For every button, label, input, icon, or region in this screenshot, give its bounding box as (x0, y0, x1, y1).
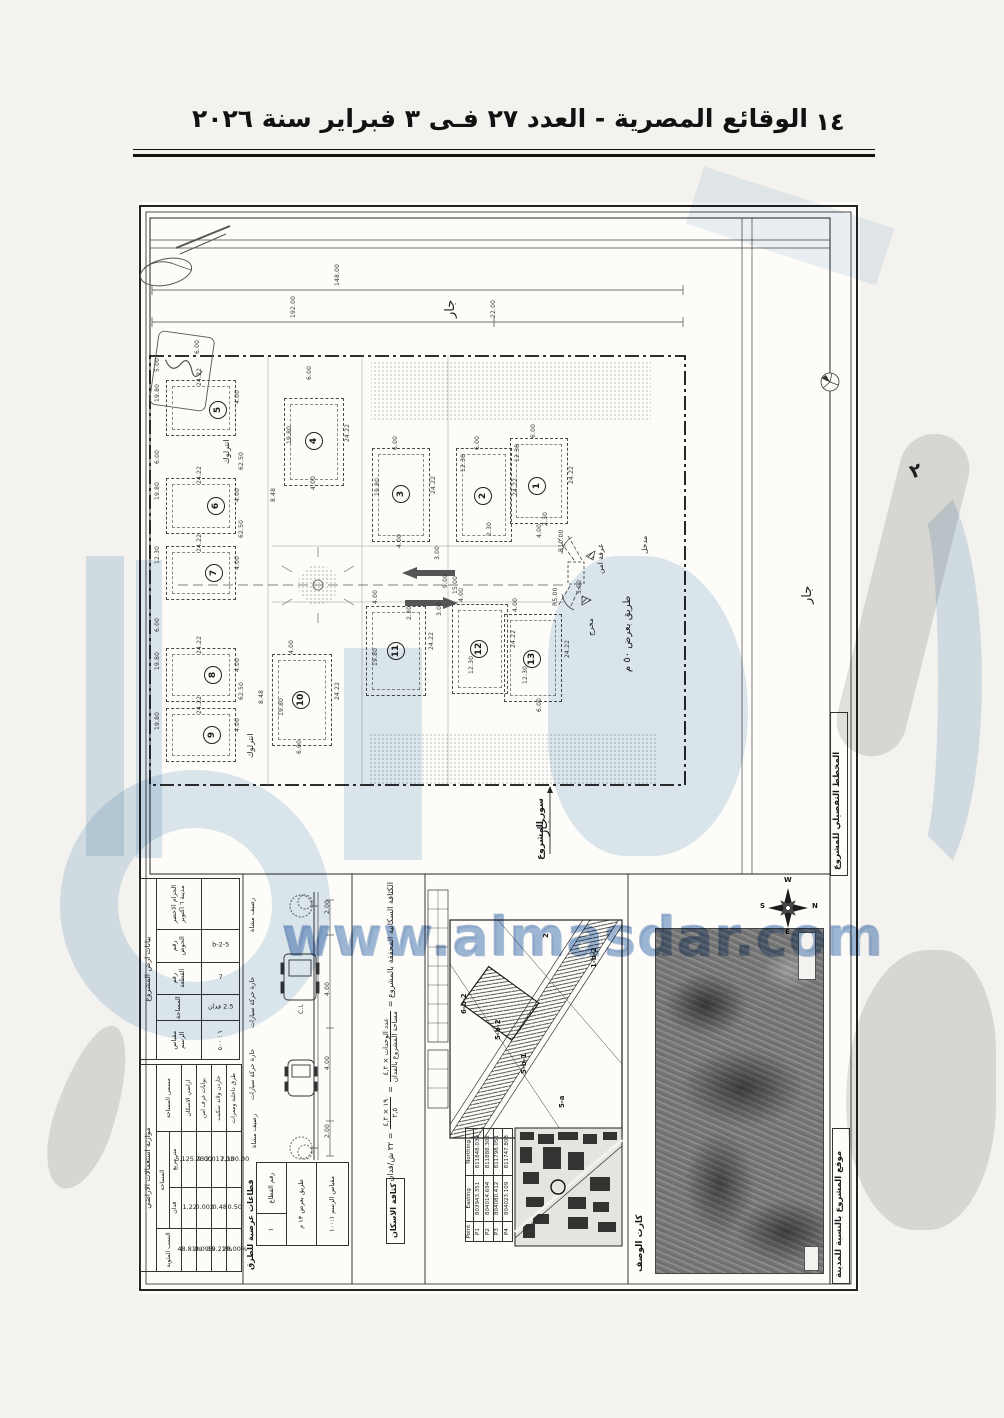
landuse-name-3: طرق داخلية وممرات (227, 1065, 242, 1132)
keymap-label-2: 2 (542, 933, 550, 938)
coords-header-Easting: Easting (466, 1175, 474, 1222)
landuse-name-0: اراضي الاسكان (182, 1065, 197, 1132)
landuse-table-title: موازنة استعمالات الاراضي (141, 1065, 157, 1272)
landuse-name-1: بوابات غرف امن (197, 1065, 212, 1132)
dim-label: 2.30 (486, 522, 493, 536)
plot-number-9: 9 (203, 726, 221, 744)
landuse-row-0: اراضي الاسكان5,125.231.2248.81% (182, 1065, 197, 1272)
compass-n: N (812, 902, 818, 910)
keymap-label-5-a: 5-a (558, 1096, 566, 1109)
dim-label: 6.00 (306, 366, 313, 380)
compass-e: E (785, 928, 790, 936)
dim-label: 148.00 (334, 264, 341, 286)
exit-label: مخرج (586, 618, 595, 636)
dim-label: 24.22 (344, 424, 351, 442)
land-table-labels: الحزام الاخضر مدينة ٦ اكتوبررقم الحوضرقم… (157, 879, 201, 1060)
dim-label: 6.00 (194, 340, 201, 354)
dim-label: 62.50 (238, 520, 245, 538)
dim-label: 24.22 (334, 682, 341, 700)
coords-cell: P2 (483, 1222, 493, 1242)
coords-row-P2: P2804014.694811888.302 (483, 1129, 493, 1242)
land-label-1: رقم الحوض (157, 930, 201, 963)
page-number: ١٤ (806, 108, 854, 136)
dim-label: 5.00 (576, 580, 583, 594)
dim-label: 24.22 (196, 696, 203, 714)
section-road-label: طريق بعرض ١٣ م (287, 1163, 317, 1246)
plot-number-10: 10 (292, 691, 310, 709)
dim-label: 3.00 (436, 602, 443, 616)
dim-label: 19.80 (154, 652, 161, 670)
watermark-shape (33, 1017, 143, 1197)
landuse-row-1: بوابات غرف امن9.000.0020.09% (197, 1065, 212, 1272)
density-numerator-2: ١٩ × ٤,٢ (382, 1097, 391, 1129)
dim-label: 2.30 (542, 512, 549, 526)
landuse-col-name: مسمى المساحة (157, 1065, 182, 1132)
coords-row-P4: P4804023.109811747.808 (503, 1129, 513, 1242)
gazette-page: { "header": { "title": "الوقائع المصرية … (0, 0, 1004, 1418)
card-label: كارت الوصف (635, 1215, 645, 1273)
landuse-m2-0: 5,125.23 (182, 1132, 197, 1187)
dim-label: 4.00 (396, 534, 403, 548)
land-label-2: رقم القطعة (157, 962, 201, 994)
dim-label: R5.00 (552, 587, 559, 606)
section-no-label: رقم القطاع (257, 1163, 287, 1214)
dim-label: 192.00 (290, 296, 297, 318)
plot-8 (166, 648, 236, 702)
fence-label: سور المشروع (536, 798, 546, 860)
coords-cell: P1 (474, 1222, 484, 1242)
interlock-label-2: انترلوك (246, 734, 255, 758)
detail-plan-title: المخطط التفصيلي للمشروع (832, 752, 842, 870)
dim-label: 12.30 (154, 546, 161, 564)
coords-header-Northing: Northing (466, 1129, 474, 1176)
dim-label: 4.00 (234, 390, 241, 404)
section-info-table: رقم القطاع ١ طريق بعرض ١٣ م مقياس الرسم … (256, 1162, 349, 1246)
land-value-1: 5-b-2 (201, 930, 239, 963)
dim-label: 6.00 (296, 740, 303, 754)
dim-label: 24.22 (428, 632, 435, 650)
dim-label: 5.00 (154, 358, 161, 372)
dim-label: 8.48 (270, 488, 277, 502)
dim-label: 24.22 (564, 640, 571, 658)
landuse-fd-1: 0.002 (197, 1187, 212, 1228)
plot-7 (166, 546, 236, 600)
header-rule (133, 149, 875, 157)
dim-label: 19.80 (286, 426, 293, 444)
land-label-0: الحزام الاخضر مدينة ٦ اكتوبر (157, 879, 201, 930)
land-table-title: بيانات ارض المشروع (141, 879, 157, 1060)
security-room-label: غرفة امن (596, 544, 605, 574)
land-value-3: 2.5 فدان (201, 994, 239, 1021)
plot-number-2: 2 (474, 487, 492, 505)
dim-label: 19.80 (154, 482, 161, 500)
dim-label: 4.00 (536, 524, 543, 538)
dim-label: 4.00 (288, 640, 295, 654)
coords-cell: 803943.351 (474, 1175, 484, 1222)
land-table-values: 5-b-272.5 فدان١ : ٥٠٠ (201, 879, 239, 1060)
dim-label: 4.00 (512, 598, 519, 612)
landuse-name-2: جاردن ولاند سكيب (212, 1065, 227, 1132)
dim-label: 6.00 (530, 424, 537, 438)
lane-label-2: حارة حركة سيارات (248, 1049, 256, 1100)
land-value-2: 7 (201, 962, 239, 994)
dim-label: 24.22 (196, 368, 203, 386)
plot-number-7: 7 (205, 564, 223, 582)
coords-cell: 811798.051 (493, 1129, 503, 1176)
coords-row-P1: P1803943.351811848.039 (474, 1129, 484, 1242)
density-lead: الكثافة السكانية المحققة بالمشروع = (386, 882, 395, 1007)
landuse-m2-3: 2,100.00 (227, 1132, 242, 1187)
landuse-row-3: طرق داخلية وممرات2,100.000.5020.00% (227, 1065, 242, 1272)
dim-label: 62.50 (238, 452, 245, 470)
coords-header-row: PointEastingNorthing (466, 1129, 474, 1242)
density-numerator: عدد الوحدات × ٤,٢ (382, 1011, 391, 1082)
satellite-legend-box-2 (804, 1246, 819, 1271)
coords-cell: 811848.039 (474, 1129, 484, 1176)
neighbor-label-right: جار (800, 586, 815, 604)
dim-label: 4.00 (458, 588, 465, 602)
section-scale-label: مقياس الرسم ١٠٠:١ (317, 1163, 349, 1246)
dim-label: 6.00 (474, 436, 481, 450)
neighbor-label-top: جار (443, 300, 458, 318)
dim-label: 2.00 (324, 1124, 331, 1138)
keymap-label-5-b-2: 5-b-2 (494, 1019, 502, 1040)
dim-label: 62.50 (238, 682, 245, 700)
dim-label: 3.00 (434, 546, 441, 560)
dim-label: 12.30 (460, 454, 467, 472)
plot-9 (166, 708, 236, 762)
density-denominator: مساحة المشروع بالفدان (391, 1011, 399, 1082)
watermark-shape (86, 556, 124, 856)
dim-label: 4.00 (372, 590, 379, 604)
sections-side-label: قطاعات عرضية للطرق (246, 1179, 255, 1270)
land-data-table: بيانات ارض المشروع الحزام الاخضر مدينة ٦… (140, 878, 240, 1060)
coords-cell: 811747.808 (503, 1129, 513, 1176)
dim-label: 19.80 (374, 478, 381, 496)
dim-label: 4.00 (324, 1056, 331, 1070)
dim-label: 6.00 (536, 698, 543, 712)
landuse-table-body: اراضي الاسكان5,125.231.2248.81%بوابات غر… (182, 1065, 242, 1272)
compass-s: S (760, 902, 765, 910)
dim-label: R10.00 (558, 529, 565, 552)
interlock-label-1: انترلوك (222, 440, 231, 464)
land-value-4: ١ : ٥٠٠ (201, 1021, 239, 1060)
dim-label: 19.80 (372, 648, 379, 666)
dim-label: 24.22 (568, 466, 575, 484)
dim-label: 8.48 (258, 690, 265, 704)
landuse-fd-0: 1.22 (182, 1187, 197, 1228)
landuse-fd-3: 0.50 (227, 1187, 242, 1228)
coords-row-P3: P3804080.412811798.051 (493, 1129, 503, 1242)
plot-6 (166, 478, 236, 534)
dim-label: 24.22 (430, 476, 437, 494)
dim-label: 9.00 (442, 574, 449, 588)
dim-label: 24.22 (196, 466, 203, 484)
dim-label: 4.00 (234, 718, 241, 732)
coords-cell: 804080.412 (493, 1175, 503, 1222)
landuse-pct-3: 20.00% (227, 1228, 242, 1271)
plot-number-11: 11 (387, 642, 405, 660)
dim-label: 4.00 (234, 488, 241, 502)
coords-table-body: P1803943.351811848.039P2804014.694811888… (474, 1129, 513, 1242)
landuse-col-area: المساحة (157, 1132, 170, 1228)
coords-cell: 804023.109 (503, 1175, 513, 1222)
plot-number-6: 6 (207, 497, 225, 515)
watermark-shape (862, 470, 982, 890)
dim-label: 12.30 (468, 656, 475, 674)
land-label-4: مقياس الرسم (157, 1021, 201, 1060)
sidewalk-label-2: رصيف مشاة (250, 1114, 258, 1148)
plot-number-1: 1 (528, 477, 546, 495)
lane-label-1: حارة حركة سيارات (248, 977, 256, 1028)
dim-label: C.L (298, 1004, 305, 1014)
dim-label: 2.30 (406, 606, 413, 620)
compass-w: W (784, 876, 792, 884)
landuse-fd-2: 0.48 (212, 1187, 227, 1228)
land-label-3: المساحة (157, 994, 201, 1021)
dim-label: 24.22 (510, 630, 517, 648)
dim-label: 6.00 (154, 450, 161, 464)
entrance-label: مدخل (640, 536, 649, 554)
site-location-caption: موقع المشروع بالنسبة للمدينة (834, 1151, 844, 1278)
plot-number-3: 3 (392, 485, 410, 503)
landuse-table: موازنة استعمالات الاراضي مسمى المساحة ال… (140, 1064, 242, 1272)
dim-label: 19.80 (278, 698, 285, 716)
sidewalk-label-1: رصيف مشاة (248, 898, 256, 932)
dim-label: 6.00 (154, 618, 161, 632)
land-value-0 (201, 879, 239, 930)
watermark-shape (846, 950, 996, 1230)
dim-label: 22.00 (490, 300, 497, 318)
dim-label: 24.22 (196, 534, 203, 552)
coords-cell: 811888.302 (483, 1129, 493, 1176)
coordinates-table: PointEastingNorthing P1803943.351811848.… (465, 1128, 513, 1242)
keymap-label-5-b-1: 5-b-1 (520, 1053, 528, 1074)
dim-label: 24.22 (512, 478, 519, 496)
handwritten-note: ٢ (907, 459, 925, 484)
road50-label: طريق بعرض ٥٠ م (622, 596, 633, 672)
drawing-sheet: 12345678910111213148.00192.0022.006.005.… (138, 202, 860, 1294)
keymap-label-1-b-2: 1-b-2 (590, 947, 598, 968)
density-denominator-2: ٢,٥ (391, 1097, 399, 1129)
plot-number-5: 5 (209, 401, 227, 419)
gazette-header-title: الوقائع المصرية - العدد ٢٧ فـى ٣ فبراير … (180, 104, 820, 133)
dim-label: 12.30 (522, 666, 529, 684)
keymap-label-6-b-2: 6-b-2 (460, 993, 468, 1014)
density-result: = ٣٢ ش/فدان (386, 1133, 395, 1182)
dim-label: 24.22 (196, 636, 203, 654)
dim-label: 12.30 (514, 444, 521, 462)
dim-label: 4.00 (324, 982, 331, 996)
plot-number-4: 4 (305, 432, 323, 450)
landuse-row-2: جاردن ولاند سكيب2,017.030.4819.21% (212, 1065, 227, 1272)
dim-label: 4.00 (234, 658, 241, 672)
dim-label: 2.00 (324, 900, 331, 914)
coords-header-Point: Point (466, 1222, 474, 1242)
coords-cell: 804014.694 (483, 1175, 493, 1222)
coords-cell: P3 (493, 1222, 503, 1242)
density-block: الكثافة السكانية المحققة بالمشروع = عدد … (358, 878, 422, 1200)
satellite-legend-box (798, 932, 816, 980)
dim-label: 19.80 (154, 384, 161, 402)
dim-label: 4.00 (234, 556, 241, 570)
dim-label: 19.80 (154, 712, 161, 730)
dim-label: 6.00 (392, 436, 399, 450)
dim-label: 4.00 (310, 476, 317, 490)
plot-number-8: 8 (204, 666, 222, 684)
section-no-value: ١ (257, 1214, 287, 1246)
coords-cell: P4 (503, 1222, 513, 1242)
landuse-col-fd: فدان (170, 1187, 182, 1228)
